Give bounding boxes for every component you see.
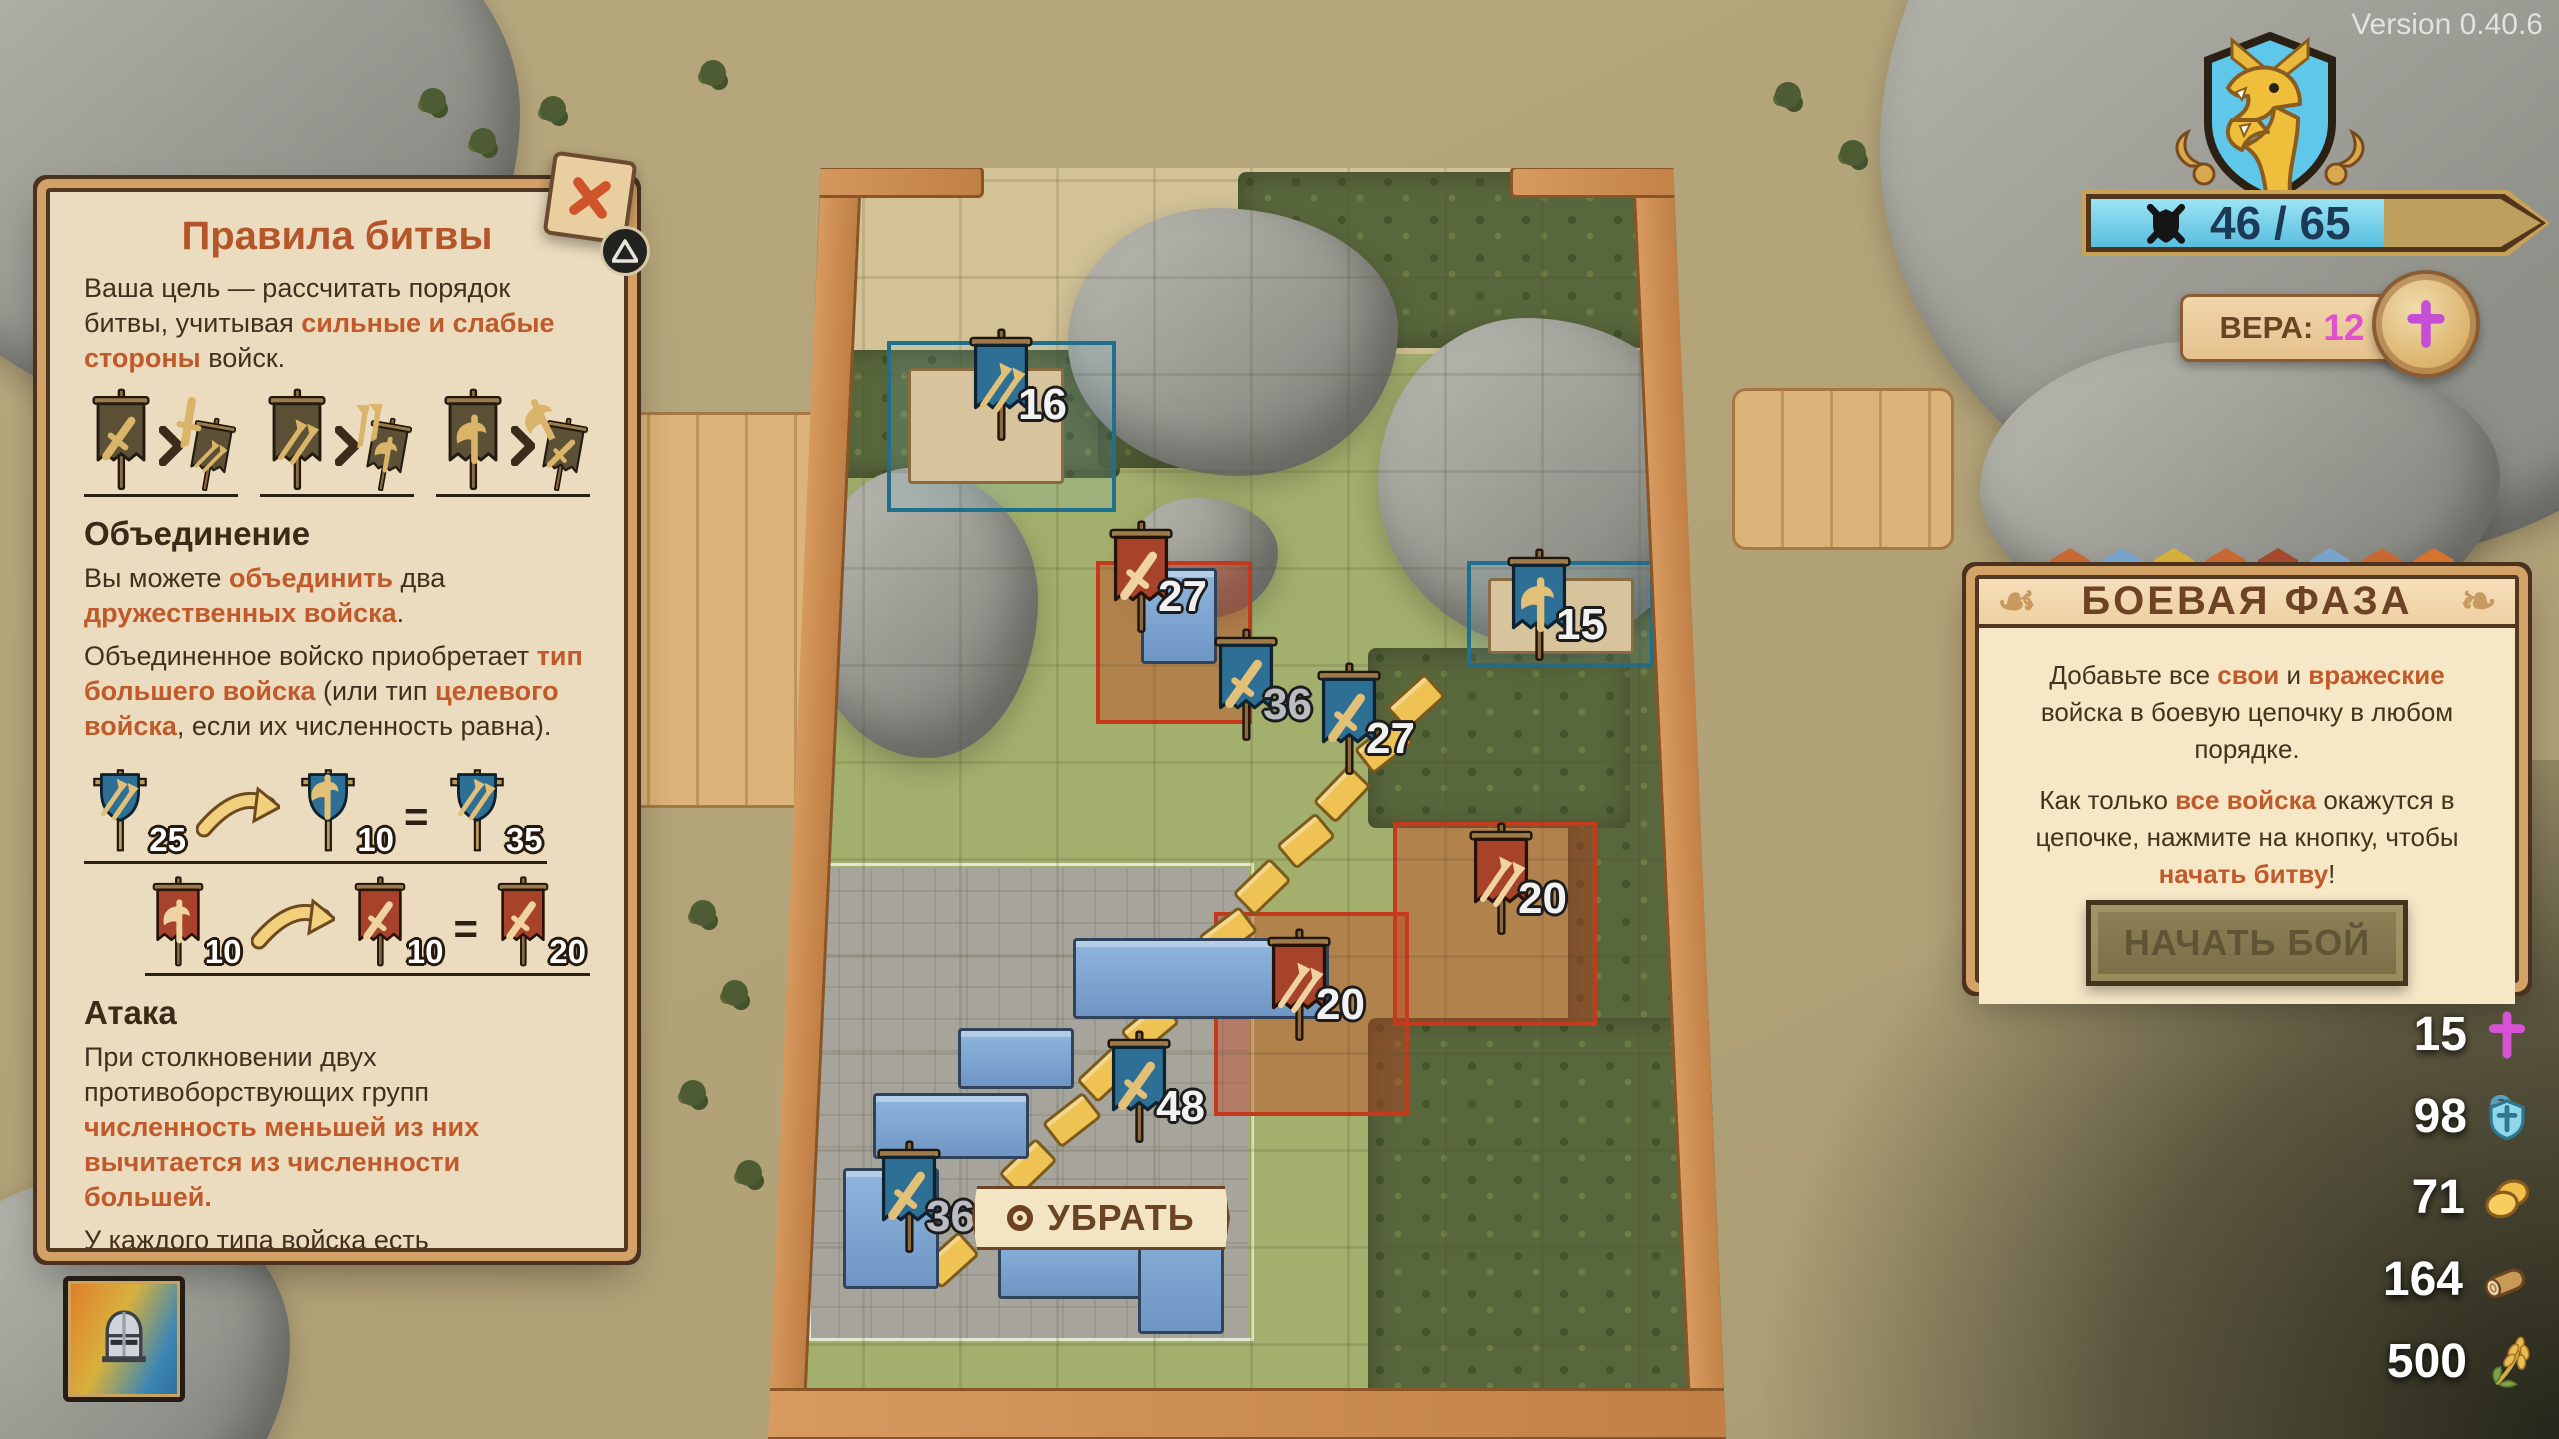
unit-count: 20 xyxy=(1518,874,1567,924)
tree xyxy=(690,900,716,926)
rules-title: Правила битвы xyxy=(84,214,590,259)
house-icon xyxy=(2310,548,2350,578)
tree xyxy=(470,128,496,154)
house-icon xyxy=(2258,548,2298,578)
unit-count: 36 xyxy=(1263,680,1312,730)
battle-panel-header: ☙ БОЕВАЯ ФАЗА ❧ xyxy=(1979,579,2515,628)
scroll-ornament-icon: ☙ xyxy=(1997,576,2036,627)
house-icon xyxy=(2102,548,2142,578)
blue-arrows-shield-icon xyxy=(441,756,513,856)
faith-value: 12 xyxy=(2323,307,2364,349)
unit-marker[interactable]: 27 xyxy=(1100,520,1186,640)
blue-arrows-shield-icon xyxy=(84,756,156,856)
player-crest-dragon-icon xyxy=(2170,26,2370,202)
armor-shield-icon xyxy=(2483,1093,2531,1141)
resource-gold: 71 xyxy=(2412,1170,2531,1225)
knight-helmet-icon xyxy=(82,1297,166,1381)
tree xyxy=(540,96,566,122)
faith-cross-icon xyxy=(2400,298,2452,350)
house-icon xyxy=(2050,548,2090,578)
house-icon xyxy=(2154,548,2194,578)
merge-arrow-icon xyxy=(251,897,335,951)
merge-example-blue: 25 10 = 35 xyxy=(84,756,547,864)
resource-value: 164 xyxy=(2383,1252,2463,1307)
unit-count: 27 xyxy=(1366,714,1415,764)
faith-counter: ВЕРА: 12 xyxy=(2180,294,2404,362)
unit-marker[interactable]: 27 xyxy=(1308,662,1394,782)
duel-axe-beats-sword xyxy=(436,388,590,497)
resource-faith: 15 xyxy=(2414,1007,2531,1062)
battle-panel-body: Добавьте все свои и вражеские войска в б… xyxy=(1979,628,2515,1004)
gold-coins-icon xyxy=(2481,1174,2531,1222)
resource-armor: 98 xyxy=(2414,1089,2531,1144)
wooden-plank-right xyxy=(1732,388,1954,550)
battle-instruction-2: Как только все войска окажутся в цепочке… xyxy=(2007,782,2487,893)
tree xyxy=(1775,82,1801,108)
unit-count: 27 xyxy=(1158,572,1207,622)
scroll-ornament-icon: ❧ xyxy=(2460,576,2497,627)
unit-marker[interactable]: 20 xyxy=(1258,928,1344,1048)
unit-count: 15 xyxy=(1556,600,1605,650)
type-advantage-row xyxy=(84,388,590,497)
building xyxy=(958,1028,1074,1089)
map-rocks xyxy=(1068,208,1398,476)
resource-value: 98 xyxy=(2414,1089,2467,1144)
wooden-plank-left xyxy=(598,412,826,808)
attack-paragraph-1: При столкновении двух противоборствующих… xyxy=(84,1040,590,1215)
merge-count: 10 xyxy=(407,933,444,971)
attack-heading: Атака xyxy=(84,994,590,1032)
resource-value: 15 xyxy=(2414,1007,2467,1062)
merge-count: 20 xyxy=(549,933,586,971)
resource-value: 500 xyxy=(2387,1334,2467,1389)
house-icon xyxy=(2206,548,2246,578)
faith-label: ВЕРА: xyxy=(2220,310,2314,346)
defeated-axe-banner xyxy=(352,413,419,502)
red-sword-banner-icon xyxy=(490,876,556,968)
tree xyxy=(1840,140,1866,166)
defeated-arrows-banner xyxy=(176,413,243,502)
gamepad-circle-icon xyxy=(1007,1205,1033,1231)
wood-log-icon xyxy=(2479,1256,2531,1304)
unit-marker[interactable]: 15 xyxy=(1498,548,1584,668)
village-decoration xyxy=(2050,542,2470,578)
resource-wood: 164 xyxy=(2383,1252,2531,1307)
sword-banner-icon xyxy=(84,388,158,492)
rules-intro: Ваша цель — рассчитать порядок битвы, уч… xyxy=(84,271,590,376)
unit-marker[interactable]: 20 xyxy=(1460,822,1546,942)
unit-count: 48 xyxy=(1156,1082,1205,1132)
arrows-banner-icon xyxy=(260,388,334,492)
board-frame-bottom xyxy=(758,1388,1744,1439)
battle-phase-title: БОЕВАЯ ФАЗА xyxy=(2081,579,2412,624)
remove-button-label: УБРАТЬ xyxy=(1047,1197,1194,1239)
wheat-icon xyxy=(2483,1336,2531,1388)
blue-axe-shield-icon xyxy=(292,756,364,856)
faith-medallion xyxy=(2372,270,2480,378)
remove-button[interactable]: УБРАТЬ xyxy=(972,1186,1230,1250)
close-icon xyxy=(565,173,615,223)
triangle-icon xyxy=(612,239,638,263)
unit-count: 36 xyxy=(926,1192,975,1242)
unit-marker[interactable]: 48 xyxy=(1098,1030,1184,1150)
defeated-sword-banner xyxy=(528,413,595,502)
red-sword-banner-icon xyxy=(347,876,413,968)
unit-count: 20 xyxy=(1316,980,1365,1030)
version-label: Version 0.40.6 xyxy=(2351,8,2543,42)
rules-panel: Правила битвы Ваша цель — рассчитать пор… xyxy=(46,188,628,1252)
tree xyxy=(700,60,726,86)
merge-count: 35 xyxy=(506,821,543,859)
merge-count: 10 xyxy=(357,821,394,859)
merge-count: 10 xyxy=(205,933,242,971)
merge-count: 25 xyxy=(149,821,186,859)
gamepad-triangle-hint xyxy=(600,226,650,276)
resource-wheat: 500 xyxy=(2387,1334,2531,1389)
red-axe-banner-icon xyxy=(145,876,211,968)
board-frame-top-left xyxy=(798,166,984,198)
unit-marker[interactable]: 36 xyxy=(868,1140,954,1260)
merge-paragraph-1: Вы можете объединить два дружественных в… xyxy=(84,561,590,631)
faith-cross-icon xyxy=(2483,1011,2531,1059)
axe-banner-icon xyxy=(436,388,510,492)
merge-example-red: 10 10 = 20 xyxy=(145,876,590,976)
attack-paragraph-2: У каждого типа войска есть преимущество … xyxy=(84,1223,590,1252)
duel-arrows-beat-axe xyxy=(260,388,414,497)
house-icon xyxy=(2414,548,2454,578)
equals-sign: = xyxy=(453,905,478,953)
unit-marker[interactable]: 16 xyxy=(960,328,1046,448)
army-capacity-bar: 46 / 65 xyxy=(2082,190,2550,256)
tree xyxy=(722,980,748,1006)
tree xyxy=(420,88,446,114)
crossed-swords-shield-icon xyxy=(2140,197,2192,249)
battle-phase-panel: ☙ БОЕВАЯ ФАЗА ❧ Добавьте все свои и враж… xyxy=(1975,575,2519,983)
tree xyxy=(680,1080,706,1106)
army-count-label: 46 / 65 xyxy=(2210,196,2351,250)
duel-sword-beats-arrows xyxy=(84,388,238,497)
merge-heading: Объединение xyxy=(84,515,590,553)
unit-marker[interactable]: 36 xyxy=(1205,628,1291,748)
equals-sign: = xyxy=(404,793,429,841)
board-frame-top-right xyxy=(1510,166,1696,198)
unit-count: 16 xyxy=(1018,380,1067,430)
battle-instruction-1: Добавьте все свои и вражеские войска в б… xyxy=(2007,657,2487,768)
game-screen: 16 27 36 27 15 20 20 48 36 УБРАТЬ Правил… xyxy=(0,0,2559,1439)
commander-avatar[interactable] xyxy=(63,1276,185,1402)
merge-arrow-icon xyxy=(196,785,280,839)
merge-paragraph-2: Объединенное войско приобретает тип боль… xyxy=(84,639,590,744)
resource-value: 71 xyxy=(2412,1170,2465,1225)
start-battle-button[interactable]: НАЧАТЬ БОЙ xyxy=(2086,900,2408,986)
start-battle-label: НАЧАТЬ БОЙ xyxy=(2124,922,2370,964)
house-icon xyxy=(2362,548,2402,578)
tree xyxy=(736,1160,762,1186)
